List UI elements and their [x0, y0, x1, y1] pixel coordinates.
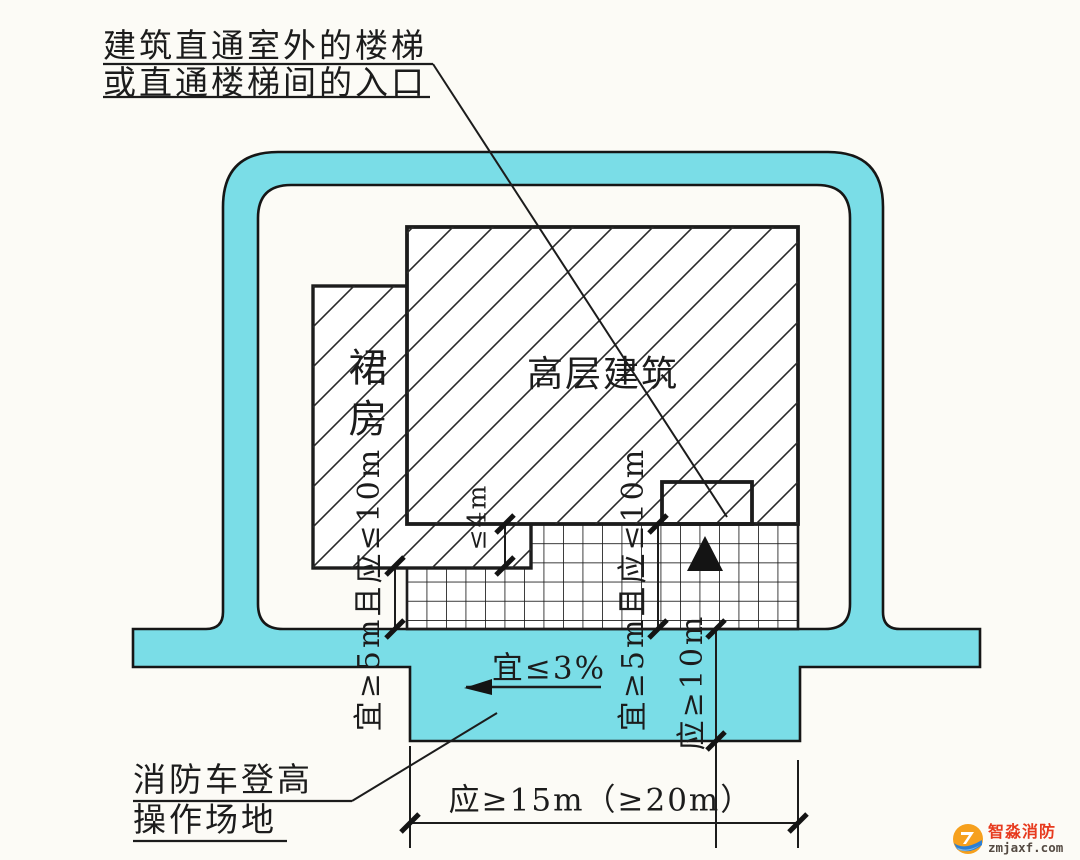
podium-label: 裙房	[336, 347, 392, 449]
fire-access-site-plan: 建筑直通室外的楼梯 或直通楼梯间的入口 高层建筑 裙房 宜≥5m且应≤10m 宜…	[0, 0, 1080, 860]
zhimiao-logo-icon	[952, 823, 984, 855]
watermark-domain: zmjaxf.com	[988, 842, 1063, 855]
highrise-label: 高层建筑	[527, 345, 679, 397]
dim-site-length: 应≥15m（≥20m）	[449, 775, 754, 820]
dim-right-offset: 宜≥5m且应≤10m	[608, 447, 652, 731]
watermark-brand: 智淼消防	[988, 824, 1063, 840]
top-callout-line1: 建筑直通室外的楼梯	[103, 27, 427, 64]
site-plan-graphics	[0, 0, 1080, 860]
dim-left-offset: 宜≥5m且应≤10m	[344, 447, 388, 731]
watermark: 智淼消防 zmjaxf.com	[952, 820, 1077, 858]
bottom-callout: 消防车登高 操作场地	[133, 760, 313, 840]
bottom-callout-line1: 消防车登高	[133, 760, 313, 800]
slope-annotation: 宜≤3%	[492, 643, 606, 688]
dim-podium-depth: ≤4m	[463, 484, 492, 551]
top-callout-line2: 或直通楼梯间的入口	[103, 64, 427, 101]
bottom-callout-line2: 操作场地	[133, 800, 313, 840]
dim-site-width: 应≥10m	[667, 614, 711, 751]
top-callout: 建筑直通室外的楼梯 或直通楼梯间的入口	[103, 27, 427, 101]
